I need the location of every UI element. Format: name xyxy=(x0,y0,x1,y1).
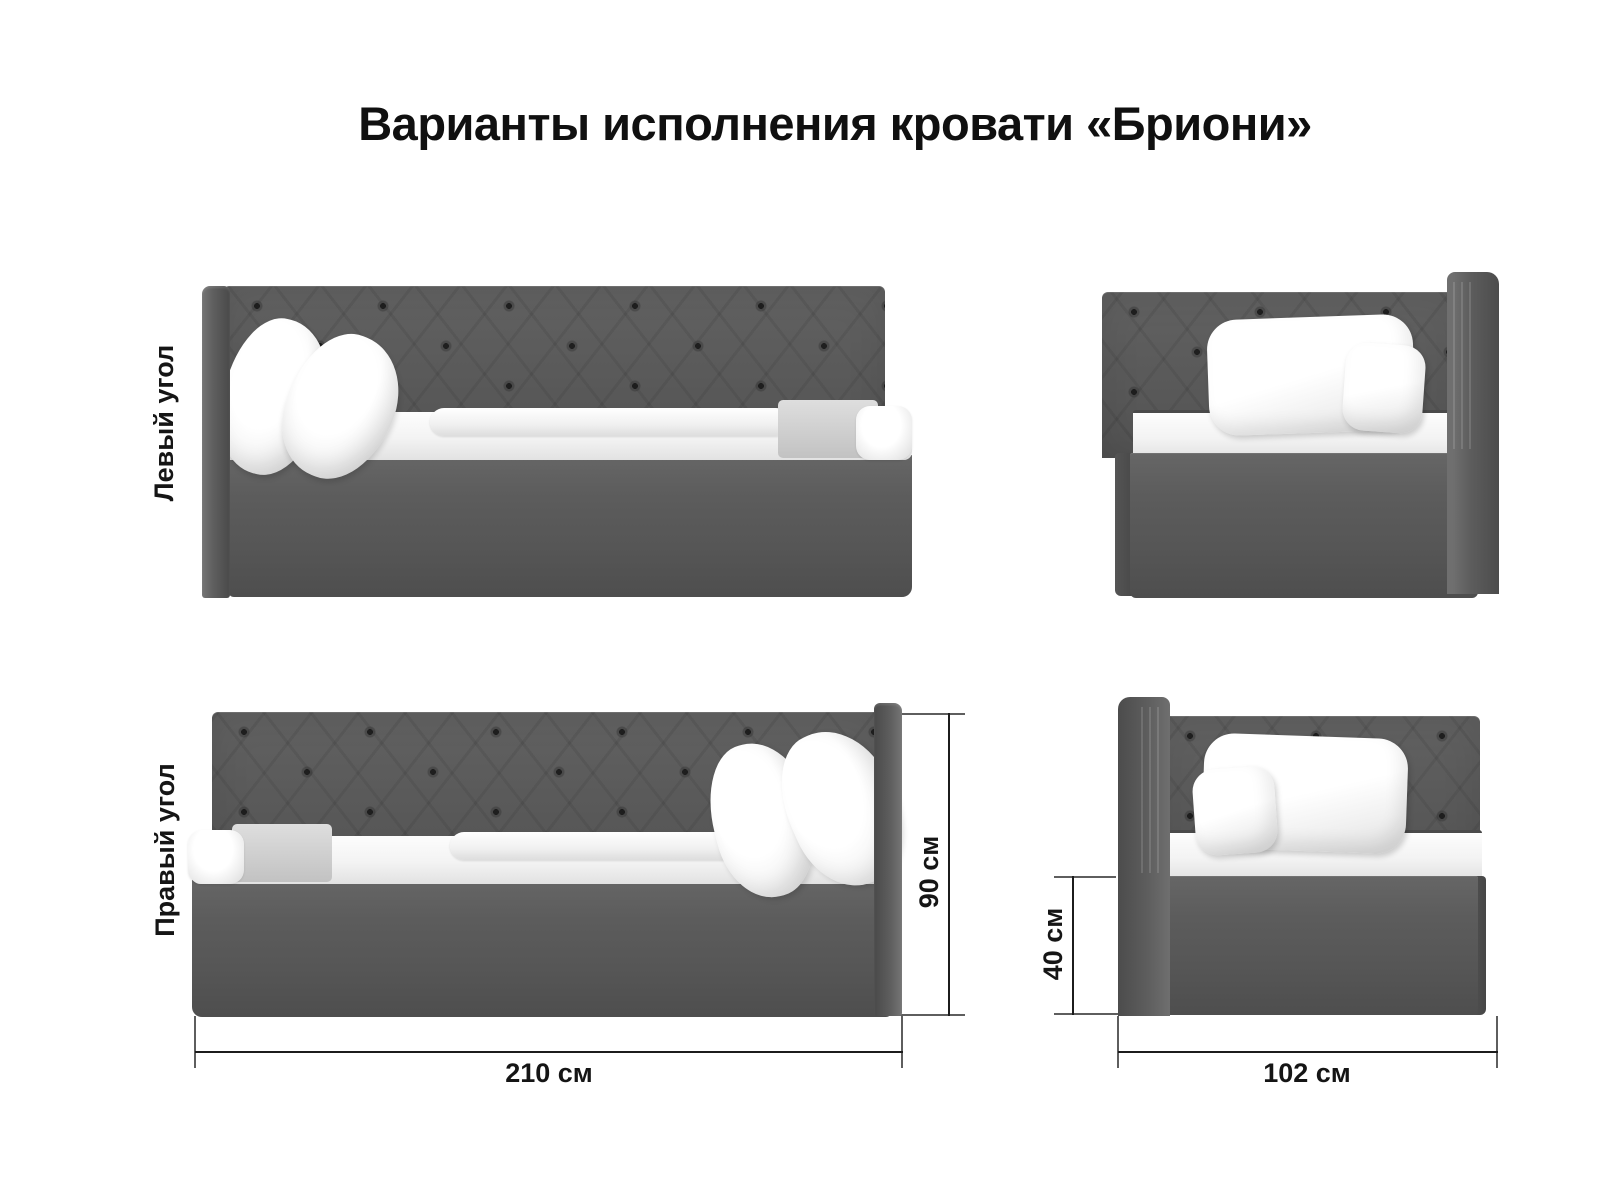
rolled-duvet xyxy=(188,830,244,884)
dimension-line xyxy=(195,1051,903,1053)
dimension-tick xyxy=(194,1016,196,1068)
dimension-tick xyxy=(891,713,965,715)
bed-base xyxy=(1118,876,1478,1015)
dimension-tick xyxy=(1496,1016,1498,1068)
bed-base xyxy=(192,878,892,1017)
bolster-pillow xyxy=(430,408,790,436)
corner-side-panel xyxy=(1447,272,1499,594)
page-title: Варианты исполнения кровати «Бриони» xyxy=(70,96,1600,151)
rolled-duvet xyxy=(856,406,912,460)
label-right-corner: Правый угол xyxy=(140,750,190,950)
label-left-corner: Левый угол xyxy=(139,323,189,523)
bed-base xyxy=(1130,453,1478,598)
pillow xyxy=(1341,341,1427,434)
dimension-width-label: 102 см xyxy=(1207,1058,1407,1089)
folded-blanket xyxy=(232,824,332,882)
dimension-tick xyxy=(901,1016,903,1068)
dimension-height-label: 90 см xyxy=(904,772,954,972)
dimension-line xyxy=(1118,1051,1498,1053)
corner-post xyxy=(202,286,230,598)
dimension-length-label: 210 см xyxy=(449,1058,649,1089)
dimension-tick xyxy=(1117,1016,1119,1068)
bed-variants-diagram: Варианты исполнения кровати «Бриони» Лев… xyxy=(0,0,1600,1200)
dimension-base-height-label: 40 см xyxy=(1028,844,1078,1044)
corner-post xyxy=(874,703,902,1016)
corner-side-panel xyxy=(1118,697,1170,1016)
pillow xyxy=(1191,765,1279,857)
